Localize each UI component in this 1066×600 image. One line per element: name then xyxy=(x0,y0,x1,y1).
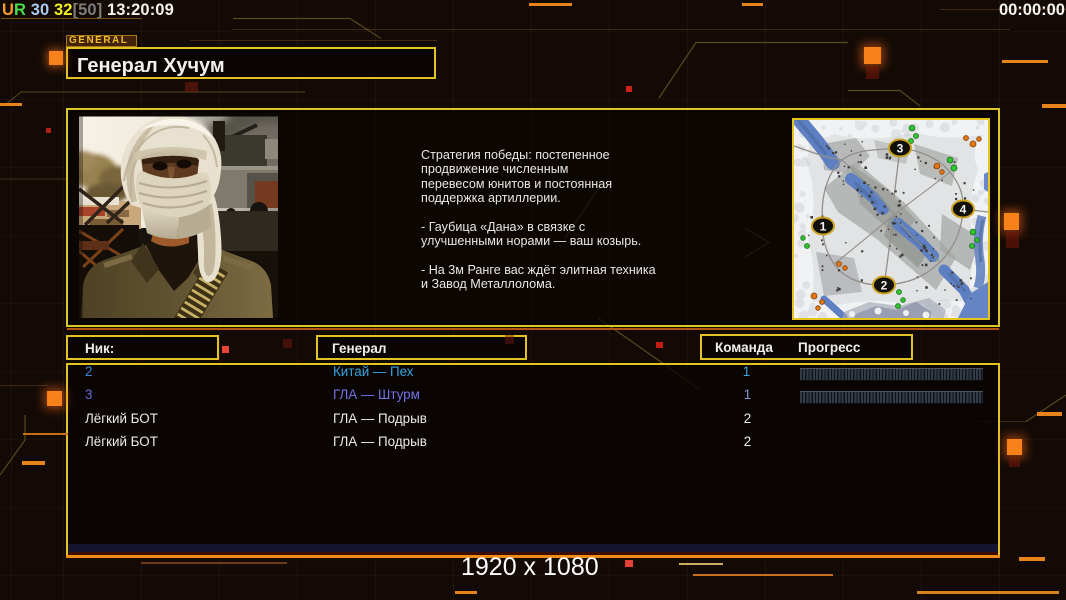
svg-text:4: 4 xyxy=(960,203,967,217)
svg-text:3: 3 xyxy=(897,142,904,156)
svg-text:2: 2 xyxy=(881,279,888,293)
svg-text:1: 1 xyxy=(820,220,827,234)
